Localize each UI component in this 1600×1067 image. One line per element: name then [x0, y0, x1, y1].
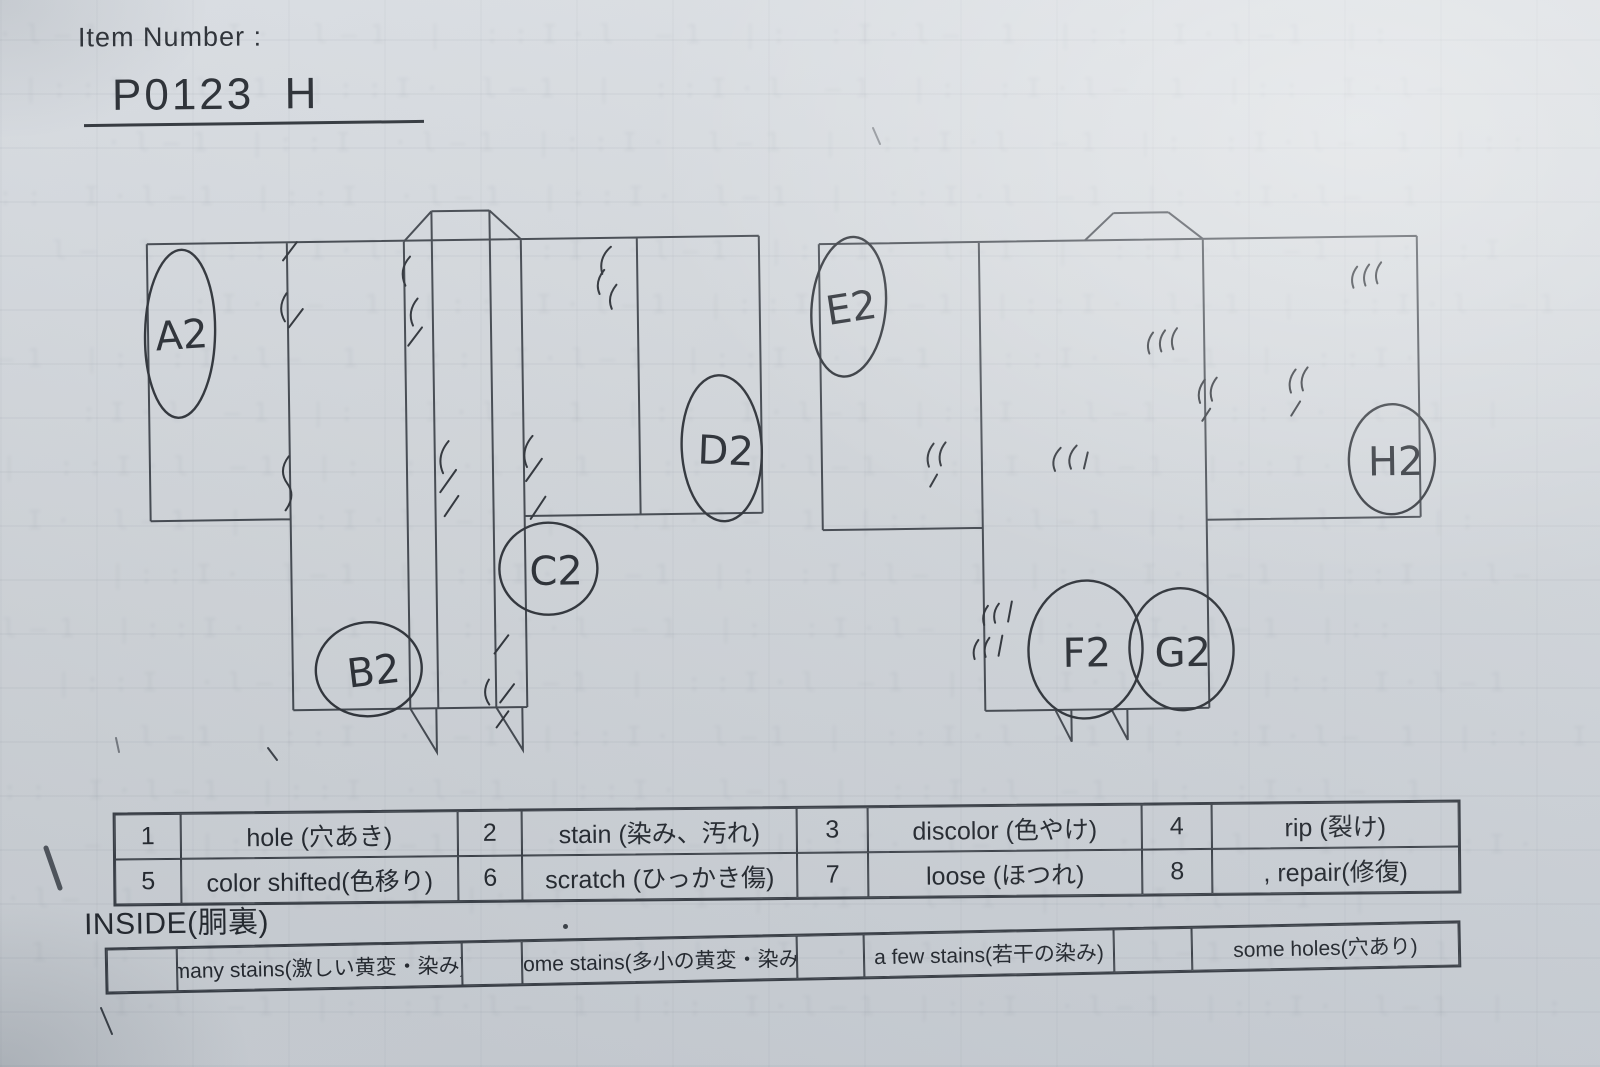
legend-code: 2: [458, 811, 522, 857]
inside-section-title: INSIDE(胴裏): [84, 897, 270, 944]
back-diagram: E2 F2 G2 H2: [803, 209, 1440, 746]
legend-label: discolor (色やけ): [868, 805, 1142, 853]
front-outline: [147, 236, 765, 712]
legend-code: 6: [458, 856, 522, 902]
marker-label-c2: C2: [529, 548, 583, 595]
marker-label-a2: A2: [154, 311, 210, 360]
legend-label: scratch (ひっかき傷): [522, 853, 797, 901]
legend-label: loose (ほつれ): [868, 850, 1142, 898]
legend-label: stain (染み、汚れ): [522, 808, 797, 856]
inside-checkbox-cell: [107, 948, 178, 992]
marker-label-e2: E2: [823, 282, 880, 335]
back-markers: E2 F2 G2 H2: [804, 225, 1441, 725]
back-outline: [819, 236, 1423, 713]
legend-code: 7: [797, 852, 868, 898]
marker-label-d2: D2: [697, 427, 755, 475]
hatch-marks-back: [925, 262, 1387, 659]
marker-label-f2: F2: [1062, 630, 1111, 677]
legend-label: rip (裂け): [1212, 802, 1459, 849]
defect-legend-table: 1 hole (穴あき) 2 stain (染み、汚れ) 3 discolor …: [113, 800, 1462, 907]
inside-option-label: a few stains(若干の染み): [864, 929, 1115, 977]
inside-option-label: many stains(激しい黄変・染み): [177, 942, 463, 991]
legend-label: , repair(修復): [1212, 847, 1459, 894]
back-collar: [1084, 212, 1202, 241]
scanned-inspection-sheet: I ·l—1 |::I· l—1 | ::I·l —1 |: :I·l— 1 |…: [0, 0, 1600, 1067]
legend-code: 8: [1142, 849, 1212, 895]
legend-code: 3: [797, 807, 868, 853]
legend-label: hole (穴あき): [181, 811, 458, 859]
inside-checkbox-cell: [462, 941, 523, 985]
inside-option-label: some stains(多小の黄変・染み): [522, 936, 798, 985]
marker-label-g2: G2: [1154, 630, 1211, 677]
marker-label-h2: H2: [1368, 439, 1424, 486]
inside-checkbox-cell: [797, 934, 865, 978]
legend-code: 1: [115, 814, 181, 860]
inside-option-label: some holes(穴あり): [1191, 922, 1459, 970]
marker-label-b2: B2: [345, 646, 403, 698]
pen-dot-artifact: [563, 924, 568, 929]
front-diagram: A2 B2 C2 D2: [141, 207, 769, 757]
legend-code: 4: [1142, 804, 1212, 850]
front-collar: [403, 210, 527, 709]
front-markers: A2 B2 C2 D2: [141, 241, 768, 724]
hatch-marks-front: [280, 238, 623, 731]
inside-checkbox-cell: [1114, 928, 1193, 973]
